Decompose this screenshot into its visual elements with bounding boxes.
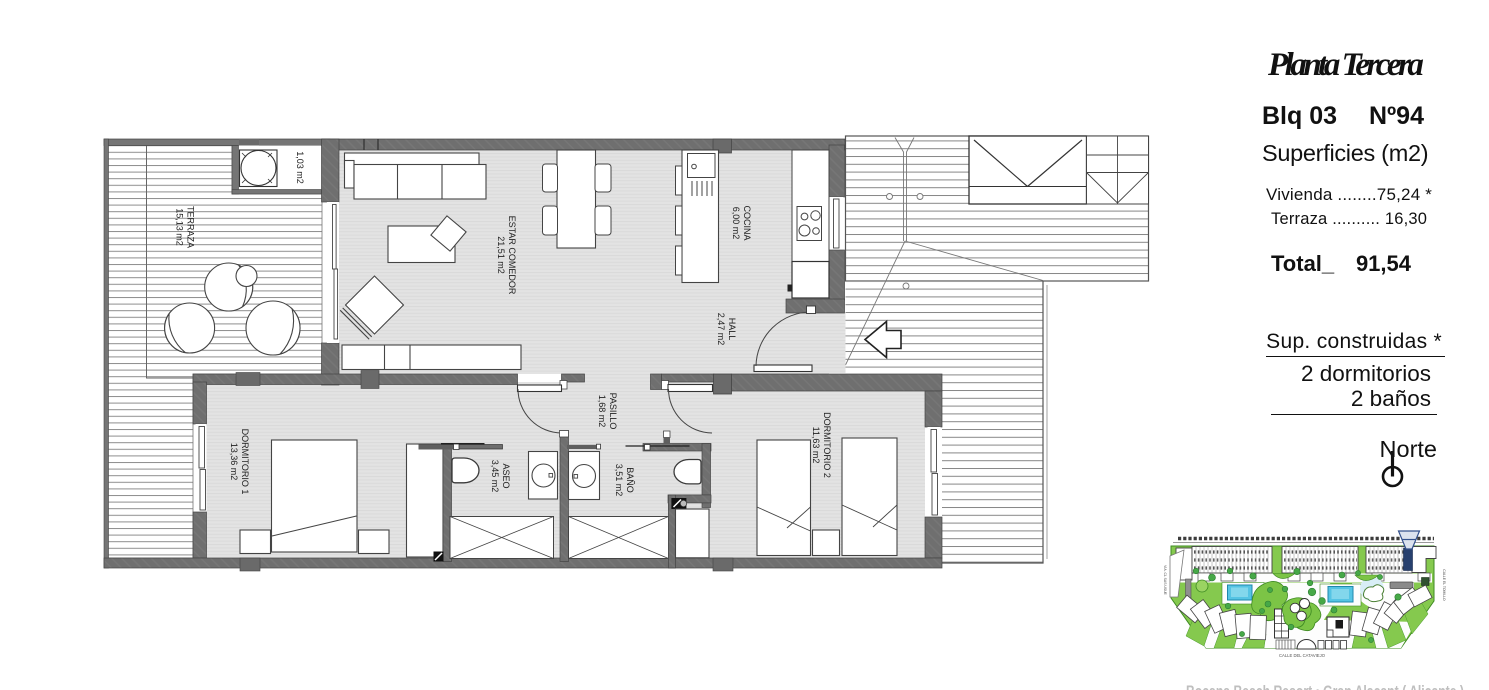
svg-text:VIA. CL SAS USUE: VIA. CL SAS USUE bbox=[1163, 565, 1167, 595]
svg-text:ASEO3,45 m2: ASEO3,45 m2 bbox=[490, 460, 511, 493]
svg-text:COCINA6,00 m2: COCINA6,00 m2 bbox=[731, 205, 752, 240]
svg-text:PASILLO1,68 m2: PASILLO1,68 m2 bbox=[597, 393, 618, 430]
svg-text:BAÑO3,51 m2: BAÑO3,51 m2 bbox=[614, 464, 635, 497]
svg-text:1,03 m2: 1,03 m2 bbox=[295, 151, 305, 184]
svg-text:Bocana Beach Resort • Gran: Bocana Beach Resort • Gran Alacant ( Ali… bbox=[1186, 682, 1464, 690]
svg-text:CALLE EL TOMILLO: CALLE EL TOMILLO bbox=[1442, 569, 1446, 601]
svg-text:TERRAZA15,13 m2: TERRAZA15,13 m2 bbox=[175, 206, 196, 248]
svg-text:CALLE DEL CATAVIEJO: CALLE DEL CATAVIEJO bbox=[1279, 653, 1326, 658]
